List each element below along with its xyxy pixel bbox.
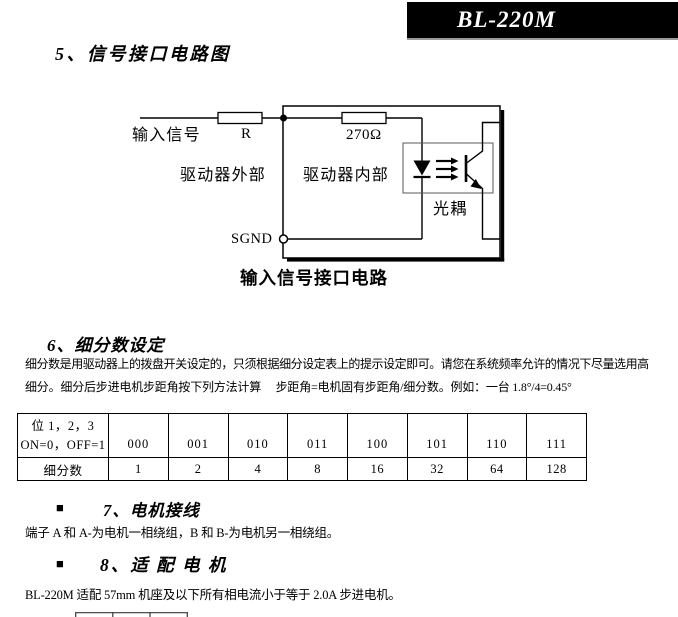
section6-paragraph-line2: 细分。细分后步进电机步距角按下列方法计算 步距角=电机固有步距角/细分数。例如：…	[25, 378, 572, 395]
value-cell: 8	[288, 458, 348, 481]
table-row-values: 细分数 1 2 4 8 16 32 64 128	[18, 458, 587, 481]
value-cell: 16	[348, 458, 408, 481]
section7-title: 7、电机接线	[103, 497, 200, 521]
code-cell: 100	[348, 414, 408, 458]
input-signal-label: 输入信号	[132, 121, 201, 145]
sgnd-label: SGND	[231, 231, 272, 248]
sgnd-terminal	[280, 235, 288, 243]
value-cell: 64	[467, 458, 527, 481]
light-arrows-icon	[436, 158, 459, 181]
driver-internal-label: 驱动器内部	[303, 161, 389, 185]
code-cell: 000	[109, 414, 169, 458]
optocoupler-label: 光耦	[433, 195, 467, 219]
section6-title: 6、细分数设定	[47, 331, 165, 356]
row-label-cell: 细分数	[18, 458, 109, 481]
code-cell: 001	[168, 414, 228, 458]
resistor-270-symbol	[342, 113, 386, 124]
section6-paragraph-line1: 细分数是用驱动器上的拨盘开关设定的，只须根据细分设定表上的提示设定即可。请您在系…	[25, 355, 649, 372]
section7-bullet-icon: ■	[56, 501, 64, 514]
table-row-codes: 位 1，2，3 ON=0，OFF=1 000 001 010 011 100 1…	[18, 414, 587, 458]
value-cell: 4	[228, 458, 288, 481]
diagram-caption: 输入信号接口电路	[240, 265, 388, 290]
value-cell: 128	[527, 458, 587, 481]
value-cell: 32	[407, 458, 467, 481]
code-cell: 101	[407, 414, 467, 458]
resistor-270-label: 270Ω	[346, 127, 382, 144]
cropped-table-edge-artifact	[75, 612, 188, 617]
code-cell: 010	[228, 414, 288, 458]
junction-dot	[280, 115, 287, 122]
subdivision-table: 位 1，2，3 ON=0，OFF=1 000 001 010 011 100 1…	[17, 413, 587, 481]
value-cell: 1	[109, 458, 169, 481]
code-cell: 110	[467, 414, 527, 458]
code-cell: 011	[288, 414, 348, 458]
bit-header-line2: ON=0，OFF=1	[18, 436, 108, 455]
section8-paragraph: BL-220M 适配 57mm 机座及以下所有相电流小于等于 2.0A 步进电机…	[25, 584, 401, 603]
bit-header-cell: 位 1，2，3 ON=0，OFF=1	[18, 414, 109, 458]
bit-header-line1: 位 1，2，3	[18, 417, 108, 436]
manual-page: { "colors": { "banner_bg": "#000000", "b…	[0, 0, 678, 617]
section8-title: 8、适 配 电 机	[100, 552, 227, 577]
phototransistor-symbol	[466, 123, 500, 240]
resistor-r-symbol	[218, 113, 262, 124]
code-cell: 111	[527, 414, 587, 458]
driver-external-label: 驱动器外部	[180, 161, 266, 185]
section7-paragraph: 端子 A 和 A-为电机一相绕组，B 和 B-为电机另一相绕组。	[25, 522, 339, 541]
led-symbol	[414, 161, 431, 178]
box-shadow-right	[501, 110, 504, 262]
resistor-r-label: R	[241, 126, 251, 143]
section8-bullet-icon: ■	[56, 557, 64, 570]
box-shadow-bottom	[287, 258, 504, 261]
signal-interface-circuit	[0, 0, 678, 300]
value-cell: 2	[168, 458, 228, 481]
